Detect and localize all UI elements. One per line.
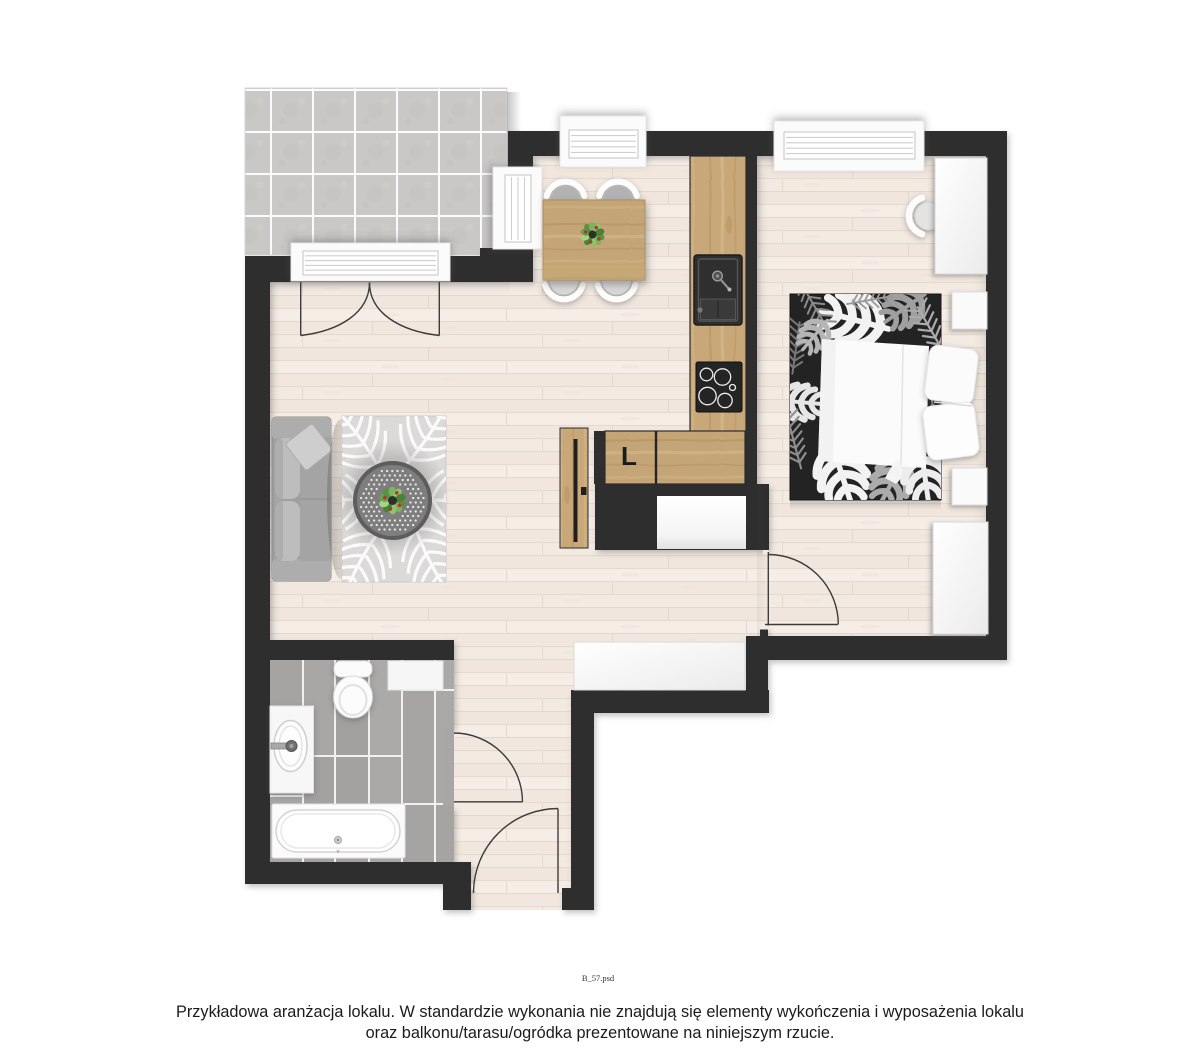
svg-text:L: L — [621, 441, 637, 471]
svg-text:B_57.psd: B_57.psd — [582, 973, 615, 983]
svg-text:Przykładowa aranżacja lokalu.: Przykładowa aranżacja lokalu. W standard… — [176, 1003, 1024, 1021]
svg-text:oraz balkonu/tarasu/ogródka pr: oraz balkonu/tarasu/ogródka prezentowane… — [366, 1024, 835, 1042]
